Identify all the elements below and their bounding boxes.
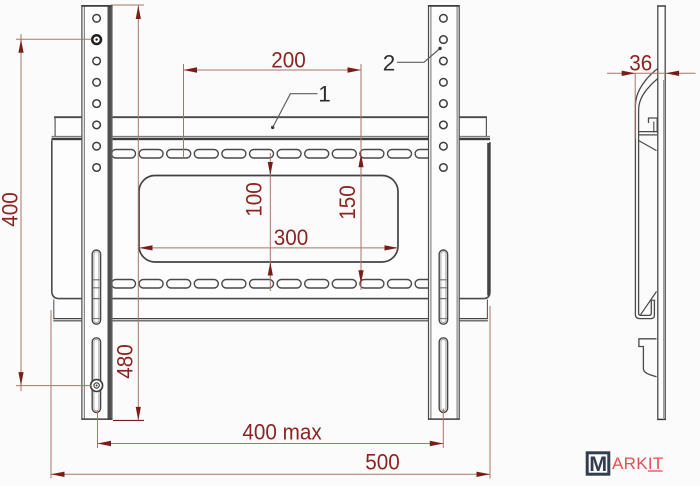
svg-text:150: 150 bbox=[334, 185, 360, 220]
svg-text:480: 480 bbox=[112, 344, 138, 379]
svg-text:36: 36 bbox=[629, 50, 652, 76]
svg-text:M: M bbox=[589, 452, 607, 476]
svg-text:400 max: 400 max bbox=[242, 419, 322, 445]
svg-text:1: 1 bbox=[318, 82, 331, 107]
svg-text:200: 200 bbox=[271, 47, 306, 73]
svg-text:500: 500 bbox=[365, 448, 400, 474]
svg-text:ARKIT: ARKIT bbox=[612, 454, 664, 473]
svg-text:100: 100 bbox=[241, 182, 267, 217]
svg-text:2: 2 bbox=[383, 51, 396, 76]
svg-text:300: 300 bbox=[274, 224, 309, 250]
svg-text:400: 400 bbox=[0, 192, 23, 227]
